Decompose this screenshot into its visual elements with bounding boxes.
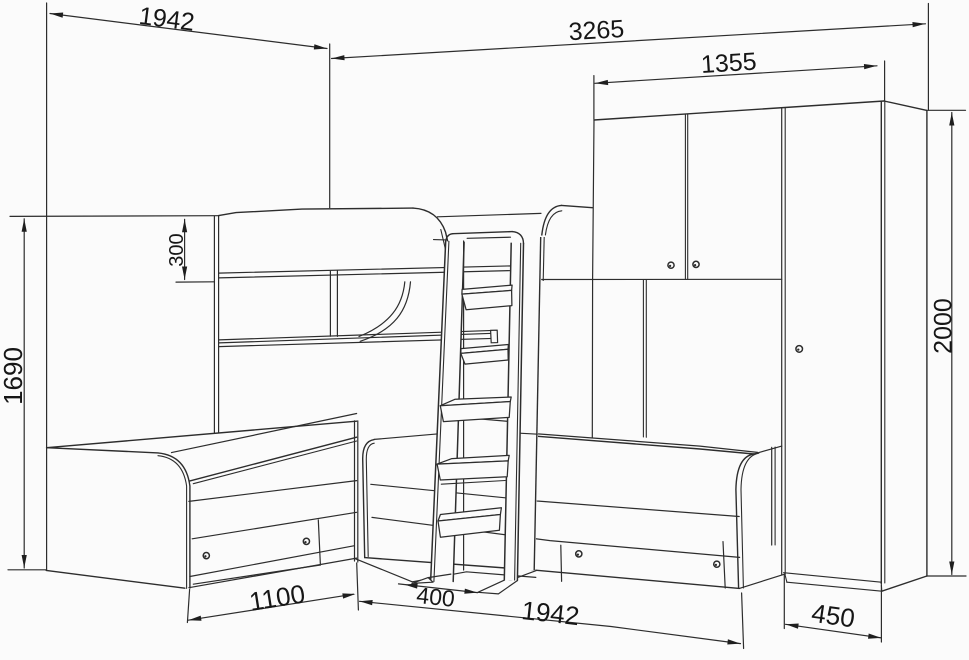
svg-text:1942: 1942: [520, 595, 581, 631]
svg-text:2000: 2000: [929, 298, 957, 354]
svg-text:1690: 1690: [0, 347, 28, 405]
svg-text:3265: 3265: [568, 15, 625, 46]
svg-text:1355: 1355: [700, 47, 757, 78]
svg-text:450: 450: [810, 598, 857, 634]
svg-text:400: 400: [415, 582, 456, 612]
svg-text:300: 300: [166, 233, 188, 266]
